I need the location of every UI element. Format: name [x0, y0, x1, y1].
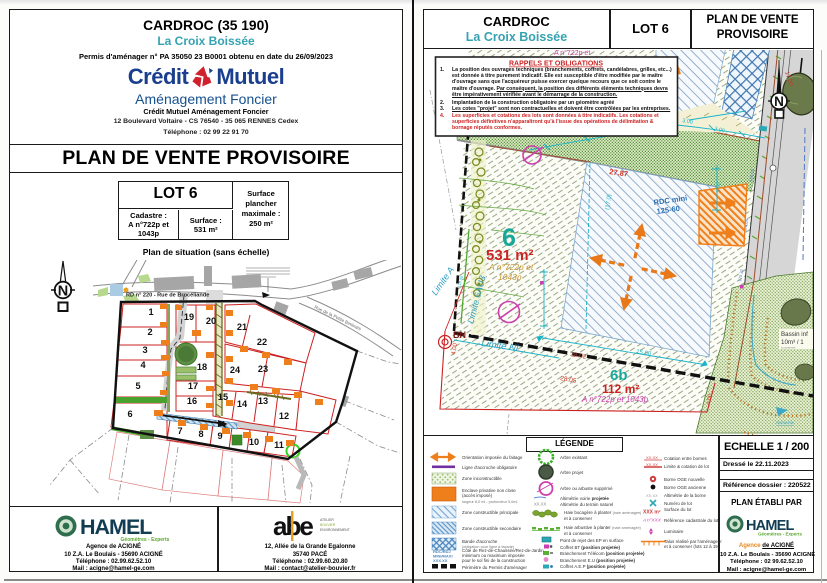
svg-text:14: 14 — [237, 399, 248, 409]
svg-text:BOUVIER: BOUVIER — [320, 523, 336, 527]
svg-text:XX.XX: XX.XX — [646, 493, 658, 498]
svg-text:Rue de la Petite Bintinais: Rue de la Petite Bintinais — [314, 304, 363, 331]
svg-text:HAMEL: HAMEL — [80, 515, 152, 539]
svg-text:4: 4 — [140, 360, 146, 370]
svg-text:XXX m²: XXX m² — [643, 510, 661, 516]
svg-text:2: 2 — [147, 327, 152, 337]
svg-text:17: 17 — [188, 381, 198, 391]
svg-text:Surverse: Surverse — [776, 420, 795, 425]
svg-text:21: 21 — [237, 322, 247, 332]
svg-text:24: 24 — [230, 365, 241, 375]
svg-text:A n°XXX: A n°XXX — [642, 518, 662, 523]
svg-text:Géomètres - Experts: Géomètres - Experts — [758, 532, 803, 537]
svg-text:22: 22 — [257, 337, 267, 347]
svg-text:112 m²: 112 m² — [602, 382, 639, 396]
svg-text:16: 16 — [187, 396, 197, 406]
svg-text:10: 10 — [249, 437, 259, 447]
svg-text:23: 23 — [258, 364, 268, 374]
svg-text:Bassin inf: Bassin inf — [781, 331, 808, 338]
svg-text:XX.XX: XX.XX — [534, 502, 547, 507]
svg-text:ENVIRONNEMENT: ENVIRONNEMENT — [320, 528, 350, 532]
svg-text:A n°722p et 1043p: A n°722p et 1043p — [581, 395, 649, 404]
svg-text:XX.XX: XX.XX — [646, 455, 658, 460]
svg-text:3.00: 3.00 — [716, 182, 722, 193]
svg-text:A n°722p et: A n°722p et — [554, 50, 590, 57]
svg-text:BN: BN — [453, 330, 466, 340]
svg-text:12: 12 — [279, 411, 289, 421]
svg-text:18: 18 — [197, 362, 207, 372]
svg-text:8: 8 — [198, 429, 203, 439]
svg-text:N: N — [774, 94, 784, 109]
svg-text:XX.XX: XX.XX — [646, 462, 658, 467]
svg-text:7: 7 — [177, 426, 182, 436]
svg-text:9: 9 — [217, 431, 222, 441]
svg-text:1: 1 — [148, 307, 153, 317]
svg-text:A n°722p et: A n°722p et — [488, 262, 534, 272]
svg-text:15: 15 — [218, 392, 228, 402]
svg-text:1043p: 1043p — [498, 272, 522, 282]
svg-text:20: 20 — [206, 316, 216, 326]
svg-text:13: 13 — [258, 396, 268, 406]
svg-text:19: 19 — [184, 312, 194, 322]
svg-text:à conserver: à conserver — [781, 346, 796, 350]
svg-text:5: 5 — [135, 381, 140, 391]
svg-text:Limite A: Limite A — [429, 265, 456, 297]
svg-text:XXX.XX: XXX.XX — [433, 558, 448, 563]
svg-text:RD n° 220 - Rue de Brocéliand: RD n° 220 - Rue de Brocéliande — [126, 293, 209, 299]
svg-text:N: N — [58, 284, 68, 300]
svg-text:6: 6 — [127, 409, 132, 419]
svg-text:ATELIER: ATELIER — [320, 518, 334, 522]
svg-text:11: 11 — [274, 440, 284, 450]
svg-text:3: 3 — [142, 345, 147, 355]
